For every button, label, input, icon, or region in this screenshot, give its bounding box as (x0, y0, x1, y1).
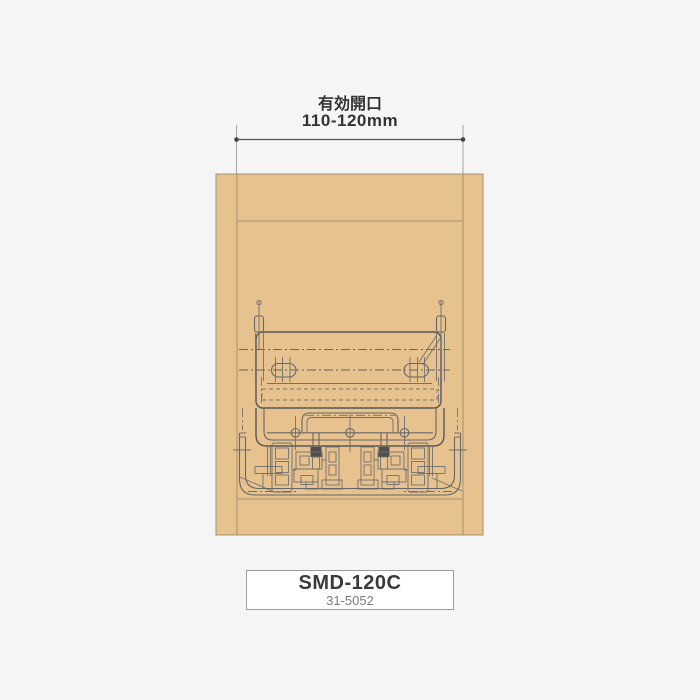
dimension-lines (234, 125, 465, 174)
dimension-value: 110-120mm (200, 111, 500, 131)
product-label-box: SMD-120C 31-5052 (246, 570, 454, 610)
product-model: SMD-120C (299, 572, 402, 594)
dimension-dot-left (234, 137, 239, 142)
product-code: 31-5052 (326, 594, 374, 608)
dimension-dot-right (461, 137, 466, 142)
page: { "dimension": { "label": "有効開口", "value… (0, 0, 700, 700)
